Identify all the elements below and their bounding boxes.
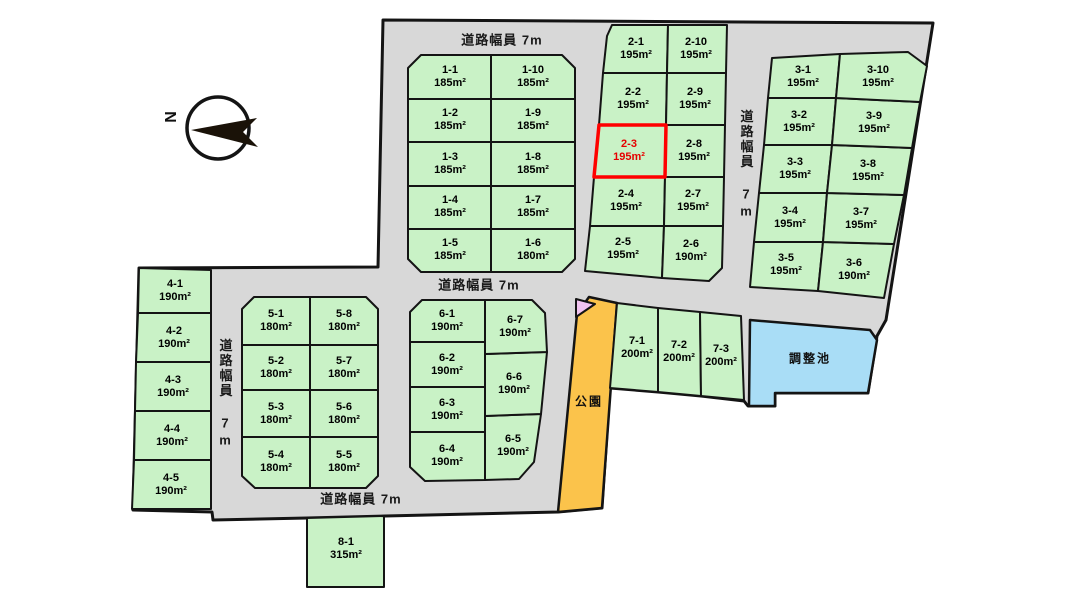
lot-id: 4-2 xyxy=(158,325,190,338)
lot-id: 3-3 xyxy=(779,156,811,169)
lot-id: 1-10 xyxy=(517,64,549,77)
lot-2-10-label[interactable]: 2-10195m² xyxy=(680,36,712,62)
lot-id: 6-1 xyxy=(431,308,463,321)
lot-id: 5-5 xyxy=(328,449,360,462)
lot-area: 185m² xyxy=(434,164,466,177)
lot-3-4-label[interactable]: 3-4195m² xyxy=(774,205,806,231)
lot-area: 185m² xyxy=(434,207,466,220)
lot-area: 315m² xyxy=(330,549,362,562)
lot-id: 1-8 xyxy=(517,151,549,164)
lot-id: 2-6 xyxy=(675,238,707,251)
lot-area: 190m² xyxy=(431,456,463,469)
compass-north-text: N xyxy=(163,111,180,123)
lot-5-2-label[interactable]: 5-2180m² xyxy=(260,355,292,381)
lot-area: 195m² xyxy=(862,77,894,90)
lot-id: 7-1 xyxy=(621,335,653,348)
lot-2-4-label[interactable]: 2-4195m² xyxy=(610,188,642,214)
lot-area: 185m² xyxy=(517,164,549,177)
lot-1-8-label[interactable]: 1-8185m² xyxy=(517,151,549,177)
lot-area: 180m² xyxy=(260,321,292,334)
lot-area: 195m² xyxy=(613,151,645,164)
lot-1-2-label[interactable]: 1-2185m² xyxy=(434,107,466,133)
lot-area: 190m² xyxy=(159,291,191,304)
lot-area: 195m² xyxy=(679,99,711,112)
lot-area: 185m² xyxy=(517,77,549,90)
lot-area: 180m² xyxy=(328,414,360,427)
lot-5-4-label[interactable]: 5-4180m² xyxy=(260,449,292,475)
lot-area: 180m² xyxy=(328,462,360,475)
lot-5-6-label[interactable]: 5-6180m² xyxy=(328,401,360,427)
block-1 xyxy=(408,55,575,272)
lot-id: 3-5 xyxy=(770,252,802,265)
lot-id: 7-2 xyxy=(663,339,695,352)
lot-3-10-label[interactable]: 3-10195m² xyxy=(862,64,894,90)
lot-area: 195m² xyxy=(774,218,806,231)
lot-id: 6-3 xyxy=(431,397,463,410)
lot-id: 3-9 xyxy=(858,110,890,123)
lot-6-5-label[interactable]: 6-5190m² xyxy=(497,433,529,459)
lot-id: 5-4 xyxy=(260,449,292,462)
lot-id: 2-1 xyxy=(620,36,652,49)
lot-1-1-label[interactable]: 1-1185m² xyxy=(434,64,466,90)
lot-id: 3-1 xyxy=(787,64,819,77)
lot-3-7-label[interactable]: 3-7195m² xyxy=(845,206,877,232)
lot-area: 195m² xyxy=(783,122,815,135)
lot-1-10-label[interactable]: 1-10185m² xyxy=(517,64,549,90)
lot-area: 195m² xyxy=(677,201,709,214)
lot-id: 2-4 xyxy=(610,188,642,201)
lot-id: 3-8 xyxy=(852,158,884,171)
lot-7-1-label[interactable]: 7-1200m² xyxy=(621,335,653,361)
lot-id: 3-10 xyxy=(862,64,894,77)
lot-3-9-label[interactable]: 3-9195m² xyxy=(858,110,890,136)
lot-area: 195m² xyxy=(617,99,649,112)
lot-2-6-label[interactable]: 2-6190m² xyxy=(675,238,707,264)
lot-area: 190m² xyxy=(431,321,463,334)
lot-3-3-label[interactable]: 3-3195m² xyxy=(779,156,811,182)
lot-6-1-label[interactable]: 6-1190m² xyxy=(431,308,463,334)
lot-area: 190m² xyxy=(158,338,190,351)
lot-area: 190m² xyxy=(838,270,870,283)
lot-1-9-label[interactable]: 1-9185m² xyxy=(517,107,549,133)
lot-5-1-label[interactable]: 5-1180m² xyxy=(260,308,292,334)
lot-5-7-label[interactable]: 5-7180m² xyxy=(328,355,360,381)
lot-2-8-label[interactable]: 2-8195m² xyxy=(678,138,710,164)
lot-3-2-label[interactable]: 3-2195m² xyxy=(783,109,815,135)
lot-2-7-label[interactable]: 2-7195m² xyxy=(677,188,709,214)
lot-area: 190m² xyxy=(156,436,188,449)
lot-area: 190m² xyxy=(155,485,187,498)
lot-area: 180m² xyxy=(260,414,292,427)
lot-id: 3-7 xyxy=(845,206,877,219)
subdivision-map: N 道路幅員 7m 道路幅員 7m 道路幅員 7m 道路幅員 7m 道路幅員 7… xyxy=(0,0,1066,599)
lot-7-2-label[interactable]: 7-2200m² xyxy=(663,339,695,365)
lot-area: 180m² xyxy=(260,368,292,381)
lot-area: 195m² xyxy=(852,171,884,184)
lot-7-3-label[interactable]: 7-3200m² xyxy=(705,343,737,369)
lot-area: 180m² xyxy=(328,368,360,381)
lot-area: 195m² xyxy=(845,219,877,232)
lot-id: 7-3 xyxy=(705,343,737,356)
lot-8-1-label[interactable]: 8-1315m² xyxy=(330,536,362,562)
lot-id: 1-4 xyxy=(434,194,466,207)
lot-2-9-label[interactable]: 2-9195m² xyxy=(679,86,711,112)
lot-area: 185m² xyxy=(517,120,549,133)
lot-id: 1-9 xyxy=(517,107,549,120)
lot-1-7-label[interactable]: 1-7185m² xyxy=(517,194,549,220)
lot-area: 195m² xyxy=(607,249,639,262)
lot-2-1-label[interactable]: 2-1195m² xyxy=(620,36,652,62)
lot-area: 200m² xyxy=(621,348,653,361)
lot-id: 6-7 xyxy=(499,314,531,327)
lot-4-5-label[interactable]: 4-5190m² xyxy=(155,472,187,498)
lot-area: 180m² xyxy=(328,321,360,334)
lot-id: 2-3 xyxy=(613,138,645,151)
lot-3-6-label[interactable]: 3-6190m² xyxy=(838,257,870,283)
lot-3-1-label[interactable]: 3-1195m² xyxy=(787,64,819,90)
lot-area: 190m² xyxy=(499,327,531,340)
lot-id: 2-2 xyxy=(617,86,649,99)
lot-id: 3-6 xyxy=(838,257,870,270)
lot-4-2-label[interactable]: 4-2190m² xyxy=(158,325,190,351)
lot-area: 190m² xyxy=(497,446,529,459)
lot-id: 5-3 xyxy=(260,401,292,414)
lot-id: 4-4 xyxy=(156,423,188,436)
lot-area: 180m² xyxy=(517,250,549,263)
lot-area: 195m² xyxy=(610,201,642,214)
lot-id: 6-4 xyxy=(431,443,463,456)
lot-5-5-label[interactable]: 5-5180m² xyxy=(328,449,360,475)
lot-area: 190m² xyxy=(431,365,463,378)
lot-5-8-label[interactable]: 5-8180m² xyxy=(328,308,360,334)
lot-area: 185m² xyxy=(517,207,549,220)
lot-area: 190m² xyxy=(157,387,189,400)
lot-area: 200m² xyxy=(705,356,737,369)
lot-id: 2-5 xyxy=(607,236,639,249)
lot-area: 195m² xyxy=(787,77,819,90)
lot-area: 195m² xyxy=(680,49,712,62)
lot-area: 190m² xyxy=(431,410,463,423)
lot-6-6-label[interactable]: 6-6190m² xyxy=(498,371,530,397)
lot-id: 2-7 xyxy=(677,188,709,201)
lot-id: 2-9 xyxy=(679,86,711,99)
lot-id: 5-6 xyxy=(328,401,360,414)
lot-id: 4-1 xyxy=(159,278,191,291)
lot-6-7-label[interactable]: 6-7190m² xyxy=(499,314,531,340)
lot-area: 195m² xyxy=(770,265,802,278)
lot-id: 3-4 xyxy=(774,205,806,218)
lot-id: 5-8 xyxy=(328,308,360,321)
lot-id: 2-8 xyxy=(678,138,710,151)
lot-id: 8-1 xyxy=(330,536,362,549)
lot-id: 1-1 xyxy=(434,64,466,77)
lot-4-1-label[interactable]: 4-1190m² xyxy=(159,278,191,304)
lot-id: 5-2 xyxy=(260,355,292,368)
lot-4-4-label[interactable]: 4-4190m² xyxy=(156,423,188,449)
lot-id: 4-3 xyxy=(157,374,189,387)
lot-area: 195m² xyxy=(779,169,811,182)
lot-id: 6-5 xyxy=(497,433,529,446)
lot-area: 190m² xyxy=(675,251,707,264)
lot-area: 200m² xyxy=(663,352,695,365)
lot-area: 195m² xyxy=(858,123,890,136)
lot-area: 195m² xyxy=(678,151,710,164)
lot-area: 180m² xyxy=(260,462,292,475)
lot-1-6-label[interactable]: 1-6180m² xyxy=(517,237,549,263)
lot-3-5-label[interactable]: 3-5195m² xyxy=(770,252,802,278)
lot-1-4-label[interactable]: 1-4185m² xyxy=(434,194,466,220)
lot-id: 3-2 xyxy=(783,109,815,122)
lot-id: 1-7 xyxy=(517,194,549,207)
lot-id: 6-6 xyxy=(498,371,530,384)
lot-4-3-label[interactable]: 4-3190m² xyxy=(157,374,189,400)
lot-3-8-label[interactable]: 3-8195m² xyxy=(852,158,884,184)
lot-6-4-label[interactable]: 6-4190m² xyxy=(431,443,463,469)
lot-1-5-label[interactable]: 1-5185m² xyxy=(434,237,466,263)
lot-id: 1-5 xyxy=(434,237,466,250)
lot-id: 5-7 xyxy=(328,355,360,368)
lot-6-2-label[interactable]: 6-2190m² xyxy=(431,352,463,378)
lot-2-2-label[interactable]: 2-2195m² xyxy=(617,86,649,112)
lot-id: 5-1 xyxy=(260,308,292,321)
lot-id: 2-10 xyxy=(680,36,712,49)
lot-area: 185m² xyxy=(434,120,466,133)
lot-id: 6-2 xyxy=(431,352,463,365)
lot-5-3-label[interactable]: 5-3180m² xyxy=(260,401,292,427)
lot-area: 185m² xyxy=(434,250,466,263)
lot-area: 185m² xyxy=(434,77,466,90)
lot-6-3-label[interactable]: 6-3190m² xyxy=(431,397,463,423)
lot-area: 190m² xyxy=(498,384,530,397)
lot-area: 195m² xyxy=(620,49,652,62)
pond-shape xyxy=(749,320,877,406)
lot-id: 1-6 xyxy=(517,237,549,250)
lot-2-3-label[interactable]: 2-3195m² xyxy=(613,138,645,164)
lot-id: 1-3 xyxy=(434,151,466,164)
lot-id: 1-2 xyxy=(434,107,466,120)
lot-2-5-label[interactable]: 2-5195m² xyxy=(607,236,639,262)
compass: N xyxy=(163,97,258,159)
lot-1-3-label[interactable]: 1-3185m² xyxy=(434,151,466,177)
lot-id: 4-5 xyxy=(155,472,187,485)
